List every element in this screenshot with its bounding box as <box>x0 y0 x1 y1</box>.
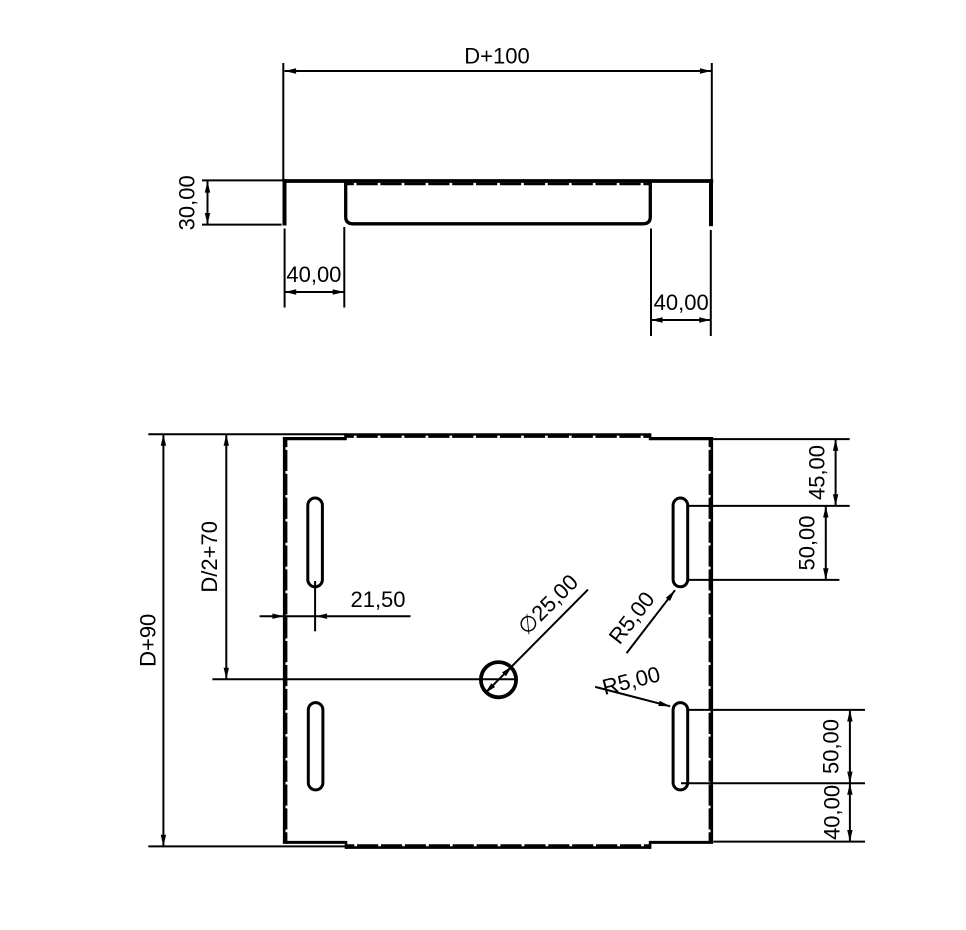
svg-text:D+100: D+100 <box>464 43 529 68</box>
svg-text:50,00: 50,00 <box>795 515 820 570</box>
svg-text:40,00: 40,00 <box>654 290 709 315</box>
svg-text:45,00: 45,00 <box>805 445 830 500</box>
svg-text:21,50: 21,50 <box>350 587 405 612</box>
svg-text:40,00: 40,00 <box>286 262 341 287</box>
svg-text:D/2+70: D/2+70 <box>197 521 222 593</box>
svg-text:30,00: 30,00 <box>175 175 200 230</box>
svg-text:50,00: 50,00 <box>819 719 844 774</box>
svg-text:D+90: D+90 <box>136 614 161 667</box>
svg-text:40,00: 40,00 <box>820 785 845 840</box>
